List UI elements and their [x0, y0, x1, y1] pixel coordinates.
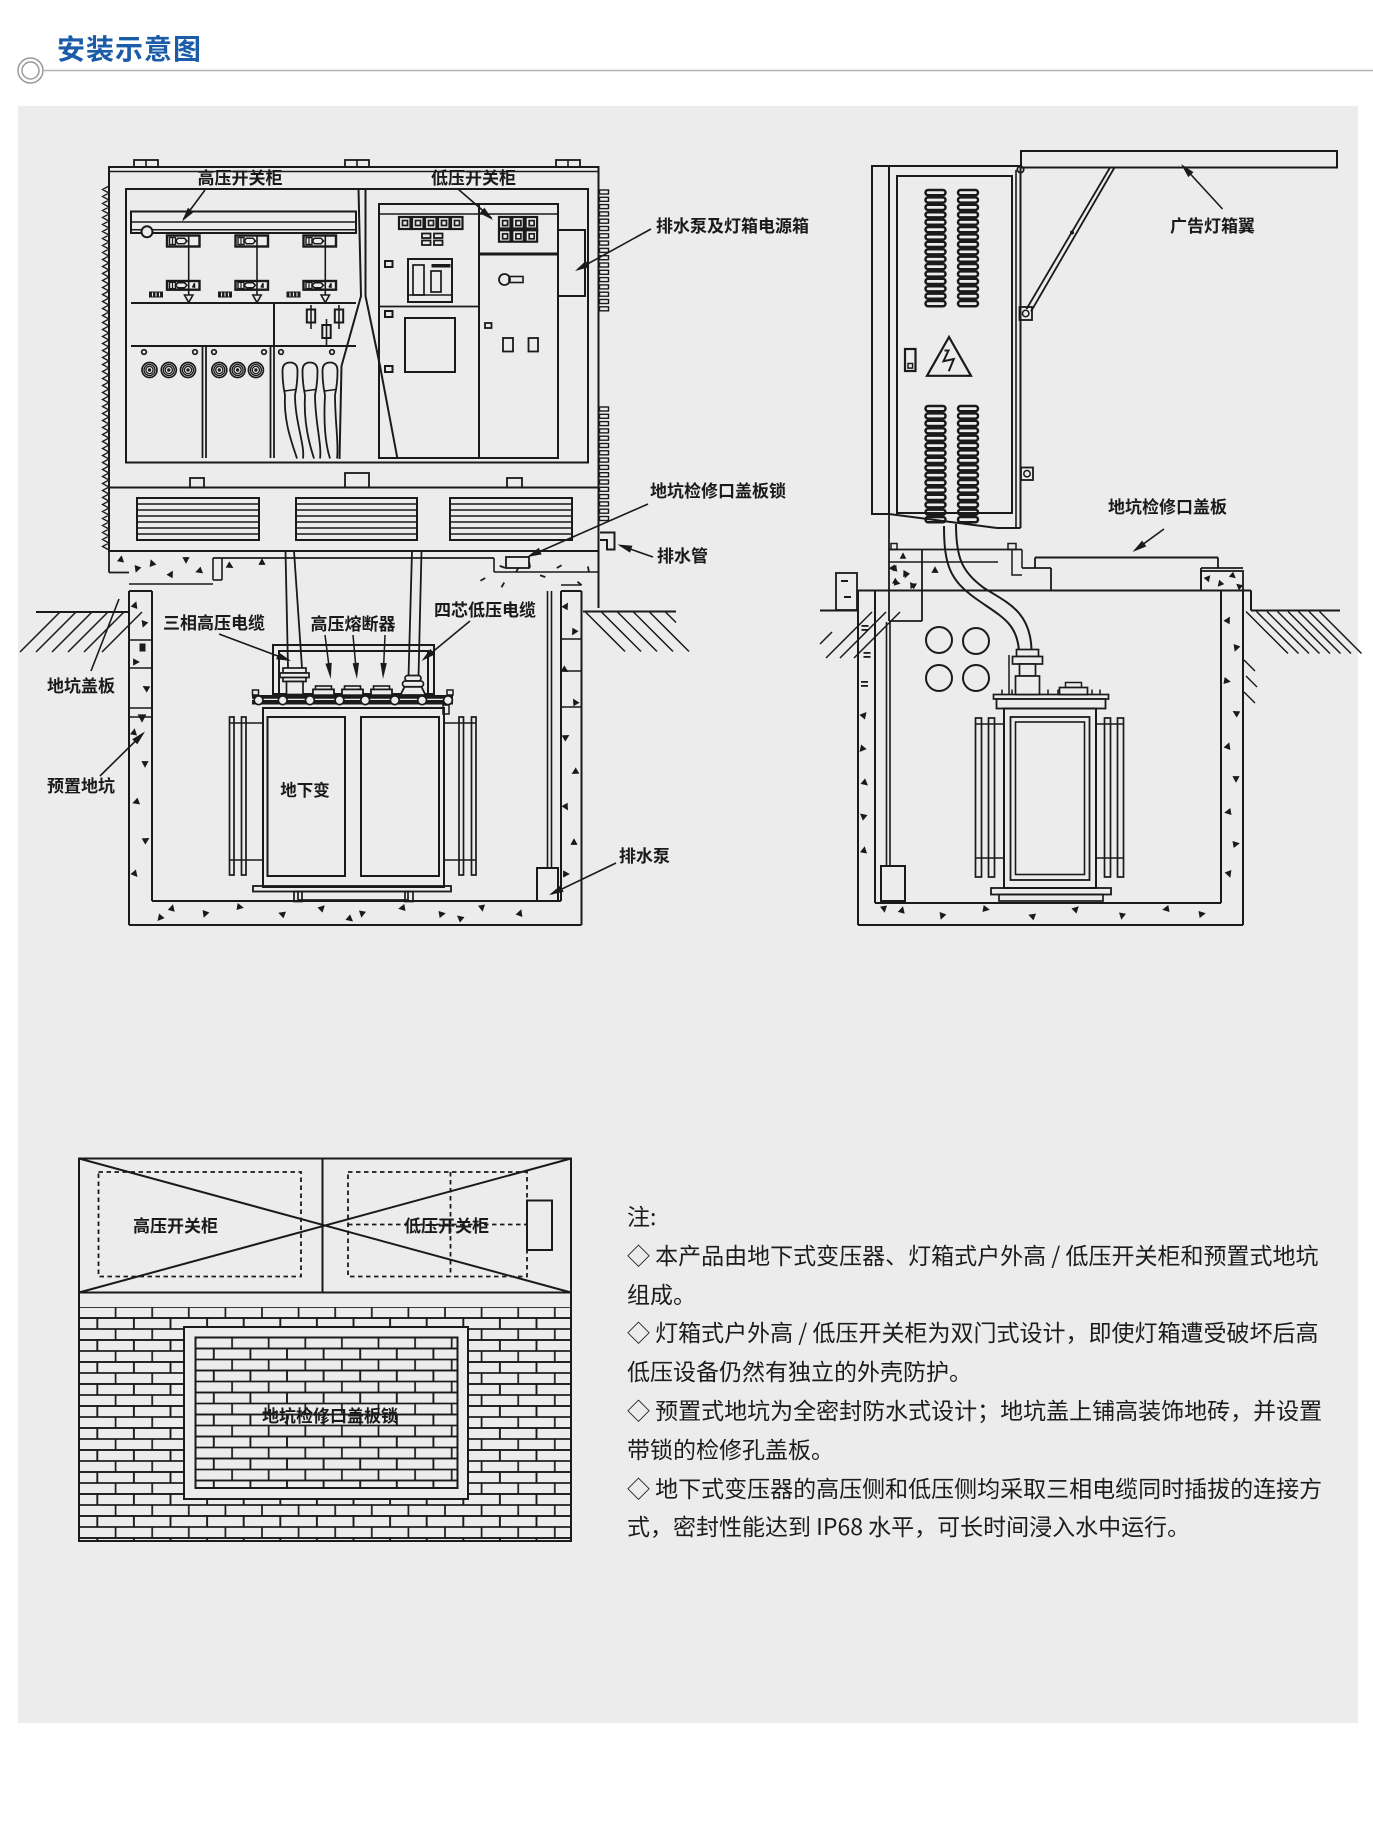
svg-text:排水泵: 排水泵 — [619, 842, 670, 867]
svg-text:低压开关柜: 低压开关柜 — [431, 164, 516, 189]
svg-text:广告灯箱翼: 广告灯箱翼 — [1170, 212, 1255, 237]
svg-text:三相高压电缆: 三相高压电缆 — [163, 609, 265, 634]
svg-text:排水管: 排水管 — [657, 542, 708, 567]
svg-text:排水泵及灯箱电源箱: 排水泵及灯箱电源箱 — [656, 212, 809, 237]
svg-text:四芯低压电缆: 四芯低压电缆 — [434, 596, 536, 621]
svg-text:地坑检修口盖板: 地坑检修口盖板 — [1108, 493, 1227, 518]
svg-text:地下变: 地下变 — [280, 777, 330, 801]
svg-text:预置地坑: 预置地坑 — [47, 772, 115, 797]
svg-text:高压熔断器: 高压熔断器 — [311, 610, 396, 635]
svg-text:低压开关柜: 低压开关柜 — [404, 1212, 489, 1237]
svg-text:地坑盖板: 地坑盖板 — [47, 672, 115, 697]
svg-text:地坑检修口盖板锁: 地坑检修口盖板锁 — [650, 477, 786, 502]
svg-text:高压开关柜: 高压开关柜 — [133, 1212, 218, 1237]
svg-text:高压开关柜: 高压开关柜 — [198, 164, 283, 189]
svg-text:地坑检修口盖板锁: 地坑检修口盖板锁 — [262, 1402, 398, 1427]
